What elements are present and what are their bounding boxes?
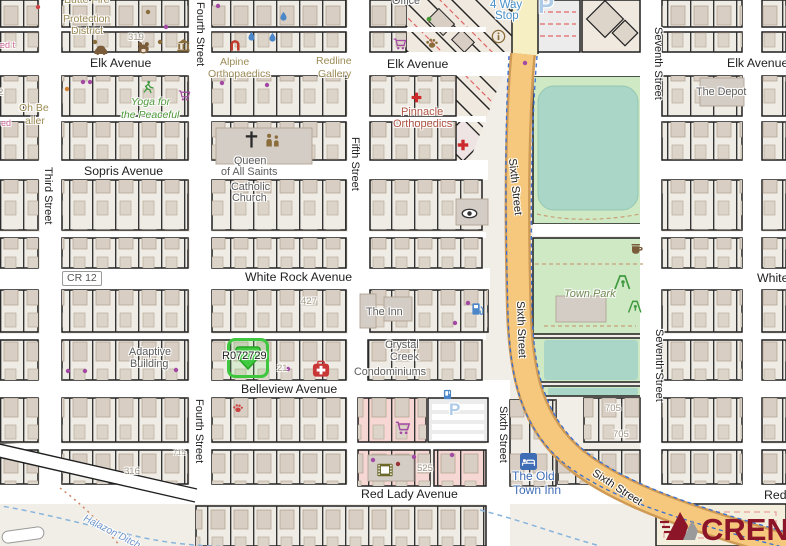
label-protection-district-2: District bbox=[71, 26, 103, 37]
label-sixth-street-hwy-s: Sixth Street bbox=[590, 468, 644, 508]
label-queen-1: Queen bbox=[234, 156, 266, 167]
label-pinnacle-2: Orthopedics bbox=[393, 119, 452, 130]
label-parking-p-north: P bbox=[538, 0, 554, 18]
label-queen-2: of All Saints bbox=[221, 167, 277, 178]
label-yoga-2: the Peaceful bbox=[121, 110, 179, 121]
label-sixth-street-south: Sixth Street bbox=[497, 406, 508, 463]
label-gallery-frag: aller bbox=[25, 116, 45, 127]
label-fourth-street-south: Fourth Street bbox=[193, 399, 204, 463]
cren-logo: CREN bbox=[660, 506, 786, 542]
label-redline-1: Redline bbox=[316, 56, 352, 67]
label-alpine-2: Orthopaedics bbox=[208, 69, 270, 80]
label-crystal-2: Creek bbox=[390, 352, 419, 363]
label-four-way-1: 4 Way bbox=[490, 0, 522, 12]
cren-logo-icon bbox=[660, 506, 700, 542]
label-sopris-avenue: Sopris Avenue bbox=[84, 165, 163, 177]
label-num-319: 319 bbox=[128, 33, 144, 43]
label-pinnacle-1: Pinnacle bbox=[401, 107, 443, 118]
label-queen-3: Catholic bbox=[231, 182, 270, 193]
label-office-frag: Office bbox=[392, 0, 420, 7]
label-elk-avenue-right: Elk Avenue bbox=[727, 57, 786, 69]
label-white-rock-avenue-east: White Rock Avenue bbox=[757, 272, 786, 284]
label-red-lady-avenue-east: Red Lady Avenue bbox=[764, 489, 786, 501]
label-halazon-ditch: Halazon Ditch bbox=[81, 514, 141, 546]
map-labels-layer: Elk AvenueElk AvenueElk AvenueSopris Ave… bbox=[0, 0, 786, 546]
label-num-2: 2 bbox=[0, 88, 3, 98]
label-red-lady-avenue: Red Lady Avenue bbox=[361, 488, 458, 500]
label-num-316: 316 bbox=[124, 467, 140, 477]
label-third-street: Third Street bbox=[42, 167, 53, 224]
label-yoga-1: Yoga for bbox=[131, 97, 170, 108]
label-butte-fire: Butte Fire bbox=[64, 0, 110, 6]
map-canvas[interactable]: Elk AvenueElk AvenueElk AvenueSopris Ave… bbox=[0, 0, 786, 546]
label-white-rock-avenue: White Rock Avenue bbox=[245, 271, 352, 283]
label-sixth-street-hwy-n: Sixth Street bbox=[506, 158, 523, 216]
label-num-525: 525 bbox=[417, 464, 433, 474]
label-the-old-2: Town Inn bbox=[513, 484, 561, 496]
label-parking-p-south: P bbox=[449, 401, 460, 418]
label-adaptive-2: Building bbox=[130, 359, 168, 370]
label-adaptive-1: Adaptive bbox=[129, 347, 171, 358]
label-crystal-3: Condominiums bbox=[354, 367, 426, 378]
label-pink-frag-1: ed t bbox=[0, 41, 15, 50]
label-protection-district-1: Protection bbox=[63, 14, 110, 25]
label-num-21: 21 bbox=[277, 364, 288, 374]
label-fourth-street-north: Fourth Street bbox=[194, 2, 205, 66]
label-num-427: 427 bbox=[301, 297, 317, 307]
label-town-park: Town Park bbox=[564, 289, 616, 300]
label-elk-avenue-center: Elk Avenue bbox=[387, 58, 448, 70]
label-num-705-b: 705 bbox=[613, 430, 629, 440]
label-belleview-avenue: Belleview Avenue bbox=[241, 383, 337, 395]
label-alpine-1: Alpine bbox=[220, 57, 249, 68]
label-num-705-a: 705 bbox=[605, 404, 621, 414]
label-crystal-1: Crystal bbox=[385, 340, 419, 351]
label-cr-12: CR 12 bbox=[62, 271, 102, 286]
parcel-id-label: R072729 bbox=[222, 350, 267, 362]
label-oh-be: Oh Be bbox=[19, 103, 49, 114]
label-sixth-street-hwy-m: Sixth Street bbox=[514, 301, 527, 358]
label-num-715: 715 bbox=[173, 449, 186, 457]
cren-logo-text: CREN bbox=[701, 517, 786, 542]
label-fifth-street: Fifth Street bbox=[349, 137, 360, 191]
label-seventh-street-east: Seventh Street bbox=[653, 329, 664, 402]
label-the-depot: The Depot bbox=[696, 87, 746, 98]
label-four-way-2: Stop bbox=[495, 11, 519, 23]
label-pink-frag-2: ed bbox=[1, 119, 11, 128]
label-seventh-street-north: Seventh Street bbox=[652, 27, 663, 100]
label-queen-4: Church bbox=[232, 193, 267, 204]
label-the-old-1: The Old bbox=[512, 470, 555, 482]
label-redline-2: Gallery bbox=[318, 69, 351, 80]
label-the-inn: The Inn bbox=[366, 307, 403, 318]
label-elk-avenue-left: Elk Avenue bbox=[90, 57, 151, 69]
